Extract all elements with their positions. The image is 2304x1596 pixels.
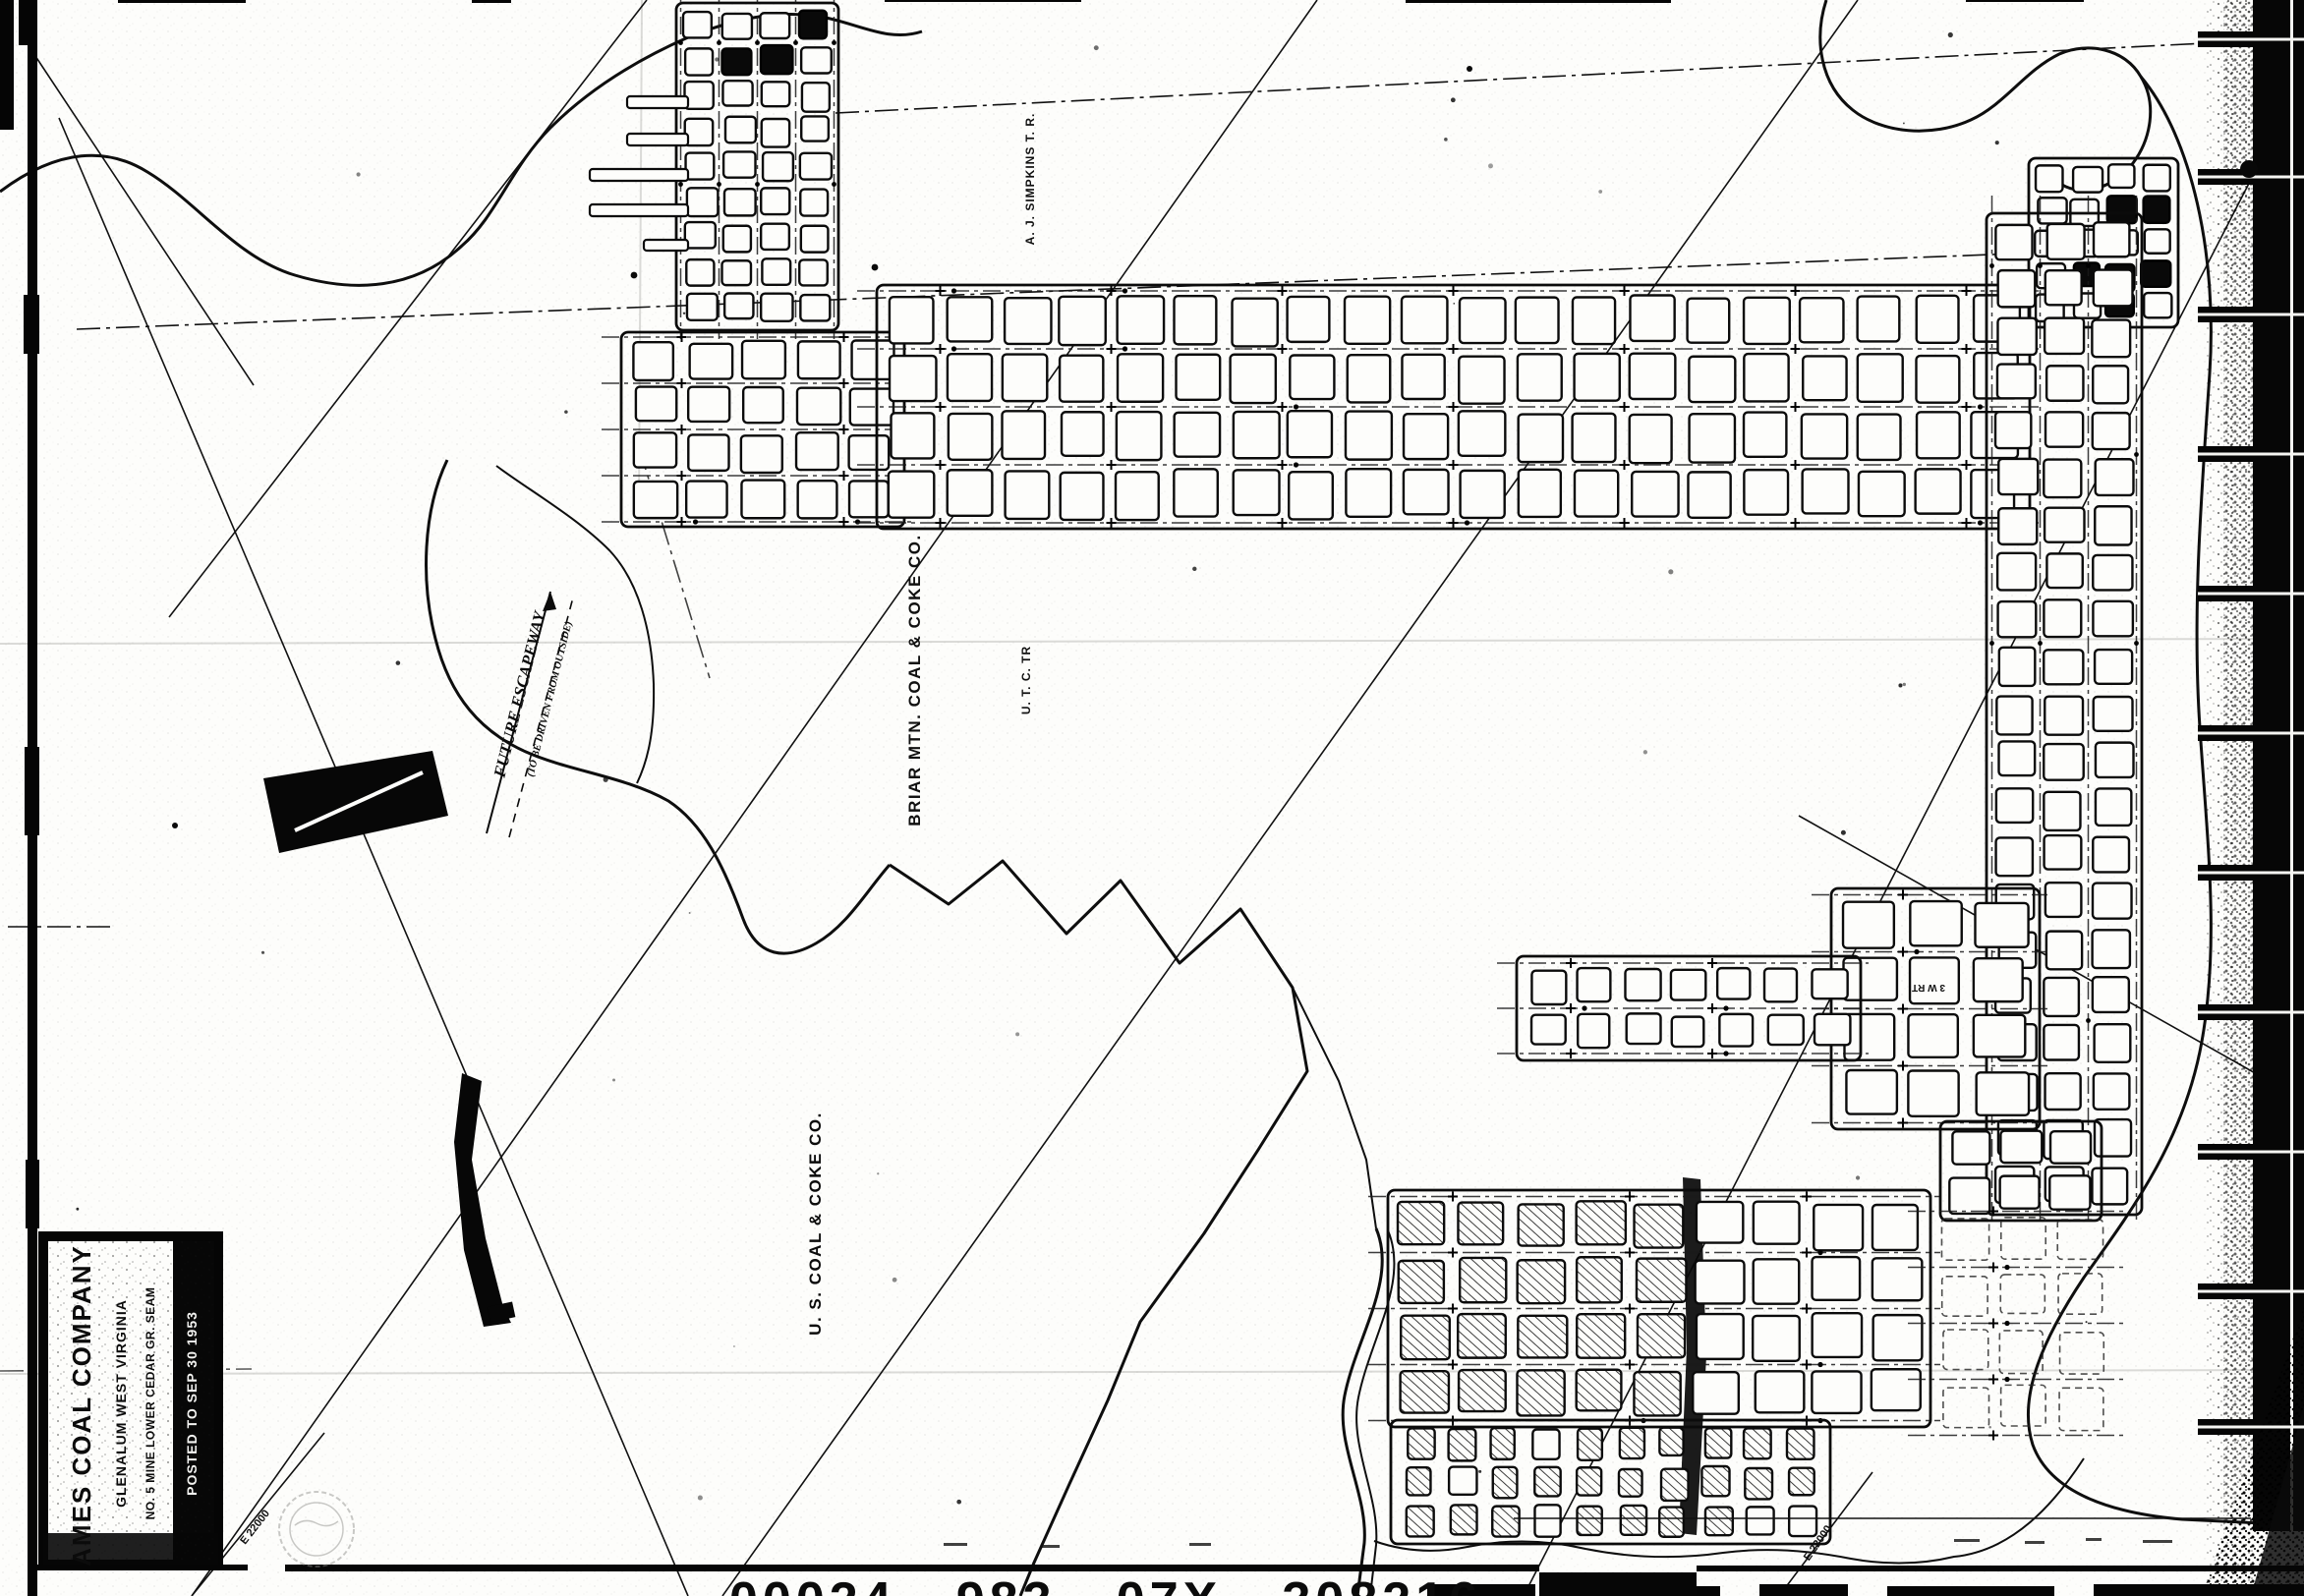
pillar xyxy=(2046,932,2082,970)
pillar xyxy=(1116,472,1159,520)
pillar xyxy=(1492,1507,1519,1537)
speck xyxy=(698,1495,703,1500)
pillar xyxy=(1672,1017,1704,1047)
pillar xyxy=(799,259,828,285)
pillar xyxy=(1345,297,1390,344)
speck xyxy=(396,660,401,665)
speck xyxy=(1453,303,1455,305)
pillar xyxy=(686,259,714,286)
pillar xyxy=(1671,970,1705,1000)
pillar xyxy=(2093,555,2132,590)
pillar xyxy=(2044,792,2080,830)
pillar xyxy=(1407,1467,1430,1495)
pillar xyxy=(1404,470,1449,514)
pillar xyxy=(2095,650,2132,684)
scanned-mine-map: AMES COAL COMPANY GLENALUM WEST VIRGINIA… xyxy=(0,0,2304,1596)
pillar xyxy=(801,47,832,73)
pillar xyxy=(1449,1467,1476,1495)
pillar xyxy=(1578,968,1611,1001)
survey-station xyxy=(1123,288,1127,293)
pillar xyxy=(1059,297,1105,345)
pillar xyxy=(1578,1429,1602,1460)
pillar xyxy=(1451,1505,1477,1534)
pillar xyxy=(1998,270,2036,307)
pillar xyxy=(1744,1428,1771,1458)
pillar xyxy=(2107,196,2137,223)
pillar xyxy=(1060,356,1103,402)
pillar xyxy=(1803,356,1846,400)
pillar xyxy=(1753,1316,1800,1361)
survey-station xyxy=(2004,1377,2009,1382)
pillar xyxy=(948,470,993,516)
pillar xyxy=(1519,470,1561,517)
pillar xyxy=(852,340,894,378)
pillar xyxy=(722,48,752,75)
survey-station xyxy=(755,40,760,45)
pillar xyxy=(2045,835,2082,870)
pillar xyxy=(1974,1015,2025,1057)
pillar xyxy=(1577,1370,1622,1411)
edge-tick-slit xyxy=(2198,1151,2304,1154)
pillar xyxy=(1458,1203,1503,1245)
pillar xyxy=(1062,412,1104,456)
pillar xyxy=(1459,1370,1506,1411)
pillar xyxy=(1519,1204,1564,1245)
pillar xyxy=(1998,508,2037,544)
pillar xyxy=(1917,412,1960,458)
pillar xyxy=(1949,1178,1989,1214)
pillar xyxy=(1789,1468,1814,1496)
pillar xyxy=(688,434,728,470)
map-canvas: AMES COAL COMPANY GLENALUM WEST VIRGINIA… xyxy=(0,0,2304,1596)
pillar xyxy=(1630,415,1672,463)
pillar xyxy=(1518,1260,1565,1303)
pillar xyxy=(741,481,784,519)
pillar xyxy=(2093,977,2129,1012)
pillar xyxy=(1346,469,1391,517)
pillar xyxy=(890,297,934,343)
pillar xyxy=(634,482,677,518)
pillar xyxy=(1118,354,1163,401)
pillar xyxy=(690,344,732,379)
pillar xyxy=(1460,1258,1506,1302)
pillar xyxy=(1578,1507,1602,1535)
speck xyxy=(1451,97,1456,102)
pillar xyxy=(1177,355,1221,400)
simpkins-tract-label: A. J. SIMPKINS T. R. xyxy=(1023,113,1037,246)
pillar xyxy=(1005,298,1051,344)
pillar xyxy=(1814,1205,1863,1250)
edge-tick-slit xyxy=(2198,1290,2304,1293)
pillar xyxy=(743,387,783,423)
stub-entry xyxy=(644,240,688,251)
pillar xyxy=(2044,744,2083,780)
pillar xyxy=(1233,299,1278,347)
pillar xyxy=(1577,1201,1626,1244)
pillar xyxy=(1630,296,1674,341)
pillar xyxy=(1688,472,1730,517)
pillar xyxy=(1744,298,1790,344)
pillar xyxy=(2045,270,2082,305)
pillar xyxy=(1404,414,1448,459)
pillar xyxy=(1531,971,1566,1004)
pillar xyxy=(1910,957,1959,1003)
pillar xyxy=(1858,297,1900,342)
pillar xyxy=(1289,472,1333,519)
speck xyxy=(261,951,264,954)
pillar xyxy=(1744,413,1786,457)
survey-station xyxy=(2038,641,2043,646)
pillar xyxy=(1908,1070,1958,1115)
pillar xyxy=(1174,296,1216,344)
pillar xyxy=(1787,1429,1814,1459)
pillar xyxy=(796,432,838,470)
pillar xyxy=(2108,164,2134,188)
pillar xyxy=(1859,472,1905,516)
survey-station xyxy=(1817,1250,1822,1255)
pillar xyxy=(2046,553,2082,588)
pillar xyxy=(762,82,789,106)
pillar xyxy=(1693,1372,1739,1413)
pillar xyxy=(2073,167,2102,193)
pillar xyxy=(1768,1015,1804,1045)
speck xyxy=(1598,190,1602,194)
survey-station xyxy=(678,182,683,187)
pillar xyxy=(1689,357,1735,402)
speck xyxy=(1015,1032,1019,1036)
pillar xyxy=(801,226,829,253)
pillar xyxy=(1637,1259,1686,1302)
pillar xyxy=(1516,298,1559,343)
pillar xyxy=(1803,469,1849,513)
pillar xyxy=(799,11,827,39)
speck xyxy=(1995,141,1999,144)
pillar xyxy=(636,387,676,422)
pillar xyxy=(1745,1468,1772,1499)
pillar xyxy=(762,119,789,147)
pillar xyxy=(1999,648,2035,686)
pillar xyxy=(1625,969,1660,1000)
pillar xyxy=(1764,969,1797,1002)
pillar xyxy=(1997,365,2036,399)
pillar xyxy=(1916,469,1961,513)
pillar xyxy=(1578,1014,1609,1048)
edge-tick-slit xyxy=(2198,872,2304,875)
pillar xyxy=(2093,883,2132,919)
pillar xyxy=(892,413,935,458)
pillar xyxy=(1802,414,1847,458)
pillar xyxy=(762,258,790,284)
pillar xyxy=(1719,1014,1753,1047)
pillar xyxy=(801,116,829,141)
film-number: 00024 - 983 - 07X - 308216 xyxy=(729,1572,1482,1596)
pillar xyxy=(1458,1314,1506,1358)
pillar xyxy=(1705,1428,1731,1457)
pillar xyxy=(634,432,676,467)
pillar xyxy=(1814,1014,1850,1046)
pillar xyxy=(2046,366,2083,401)
speck xyxy=(1690,1212,1692,1214)
pillar xyxy=(1531,1015,1566,1045)
pillar xyxy=(2045,697,2083,735)
pillar xyxy=(1872,1258,1922,1300)
pillar xyxy=(633,342,672,380)
pillar xyxy=(761,224,789,250)
survey-station xyxy=(1465,520,1469,525)
pillar xyxy=(2095,506,2131,544)
pillar xyxy=(1573,297,1615,344)
pillar xyxy=(797,388,840,425)
pillar xyxy=(1402,355,1444,399)
pillar xyxy=(1288,297,1330,342)
pillar xyxy=(685,48,713,75)
pillar xyxy=(760,13,789,38)
pillar xyxy=(2093,601,2132,636)
speck xyxy=(604,777,608,782)
pillar xyxy=(761,294,792,321)
speck xyxy=(1988,1426,1991,1429)
speck xyxy=(564,410,568,414)
pillar xyxy=(1620,1428,1644,1458)
survey-station xyxy=(2134,641,2139,646)
pillar xyxy=(685,222,716,248)
pillar xyxy=(1846,1070,1896,1114)
briar-tract-label: BRIAR MTN. COAL & COKE CO. xyxy=(905,534,924,826)
pillar xyxy=(1534,1467,1560,1497)
survey-station xyxy=(2086,263,2091,268)
pillar xyxy=(2093,837,2129,873)
pillar xyxy=(2096,459,2134,495)
pillar xyxy=(1461,471,1505,518)
pillar xyxy=(1974,958,2023,1001)
pillar xyxy=(2144,293,2171,317)
pillar xyxy=(1789,1507,1816,1537)
survey-station xyxy=(793,40,798,45)
survey-station xyxy=(2038,263,2043,268)
pillar xyxy=(1717,968,1750,998)
pillar xyxy=(2093,930,2130,968)
speck xyxy=(1094,45,1099,50)
pillar xyxy=(2144,197,2170,223)
pillar xyxy=(741,435,782,473)
stub-entry xyxy=(590,204,688,216)
speck xyxy=(1478,1470,1481,1473)
speck xyxy=(1903,123,1905,125)
pillar xyxy=(1577,1314,1625,1357)
pillar xyxy=(683,12,712,37)
pillar xyxy=(1977,1072,2029,1115)
title-company: AMES COAL COMPANY xyxy=(67,1244,96,1567)
pillar xyxy=(1858,415,1901,460)
pillar xyxy=(1288,411,1332,457)
pillar xyxy=(1460,298,1506,343)
pillar xyxy=(1813,1257,1861,1300)
pillar xyxy=(1844,958,1897,1000)
pillar xyxy=(1402,297,1447,344)
pillar xyxy=(948,354,992,401)
pillar xyxy=(1997,318,2036,355)
pillar xyxy=(2044,599,2081,637)
pillar xyxy=(1872,1369,1921,1410)
speck xyxy=(1488,163,1493,168)
pillar xyxy=(1407,1507,1434,1537)
survey-station xyxy=(2086,1018,2091,1023)
pillar xyxy=(1577,1467,1601,1495)
pillar xyxy=(1800,298,1843,342)
speck xyxy=(1903,683,1906,686)
pillar xyxy=(1575,471,1618,517)
edge-tick-slit xyxy=(2198,38,2304,41)
pillar xyxy=(1573,414,1616,462)
pillar xyxy=(1998,459,2038,494)
pillar xyxy=(723,151,755,177)
pillar xyxy=(849,481,889,517)
pillar xyxy=(798,481,837,518)
pillar xyxy=(1701,1466,1729,1496)
pillar xyxy=(1408,1428,1434,1458)
stub-entry xyxy=(590,169,688,181)
survey-station xyxy=(1978,404,1983,409)
survey-station xyxy=(1723,1005,1728,1010)
pillar xyxy=(763,152,793,181)
pillar xyxy=(1401,1316,1450,1360)
speck xyxy=(689,912,691,914)
survey-station xyxy=(832,182,836,187)
pillar xyxy=(1175,413,1220,457)
pillar xyxy=(2144,165,2170,192)
pillar xyxy=(1908,1014,1957,1057)
pillar xyxy=(1449,1429,1476,1460)
survey-station xyxy=(717,182,721,187)
pillar xyxy=(802,83,830,111)
speck xyxy=(1856,1175,1860,1179)
pillar xyxy=(1632,472,1678,517)
speck xyxy=(1643,750,1647,754)
pillar xyxy=(1234,412,1280,458)
pillar xyxy=(1754,1202,1800,1244)
pillar xyxy=(2000,1176,2040,1209)
pillar xyxy=(2045,318,2084,354)
pillar xyxy=(1697,1314,1744,1359)
survey-station xyxy=(1914,949,1919,954)
pillar xyxy=(2049,1175,2090,1209)
edge-tick-slit xyxy=(2198,313,2304,316)
title-posted-date: POSTED TO SEP 30 1953 xyxy=(184,1311,200,1496)
us-tract-label: U. S. COAL & COKE CO. xyxy=(806,1111,825,1336)
pillar xyxy=(2045,883,2082,917)
stub-entry xyxy=(627,134,688,145)
edge-tick-slit xyxy=(2198,593,2304,596)
pillar xyxy=(686,153,715,180)
pillar xyxy=(1812,969,1847,998)
pillar xyxy=(722,260,751,285)
pillar xyxy=(1997,553,2036,591)
pillar xyxy=(1858,354,1903,401)
speck xyxy=(893,1278,897,1282)
survey-station xyxy=(1723,1051,1728,1055)
pillar xyxy=(1996,837,2033,876)
pillar xyxy=(2045,412,2083,446)
edge-tick-slit xyxy=(2198,453,2304,456)
pillar xyxy=(1705,1508,1733,1536)
title-location: GLENALUM WEST VIRGINIA xyxy=(113,1299,129,1508)
pillar xyxy=(686,482,726,518)
pillar xyxy=(1754,1259,1800,1303)
pillar xyxy=(1635,1205,1684,1248)
pillar xyxy=(1006,471,1050,519)
pillar xyxy=(1003,355,1047,402)
pillar xyxy=(1995,225,2032,259)
pillar xyxy=(2038,198,2066,223)
speck xyxy=(357,172,361,176)
pillar xyxy=(1697,1202,1743,1243)
pillar xyxy=(2044,650,2083,684)
pillar xyxy=(1999,741,2036,775)
pillar xyxy=(2044,978,2079,1016)
pillar xyxy=(1532,1429,1559,1458)
survey-station xyxy=(951,288,956,293)
pillar xyxy=(1234,470,1280,515)
pillar xyxy=(2096,788,2131,826)
pillar xyxy=(761,45,792,74)
survey-station xyxy=(1294,404,1298,409)
edge-tick-slit xyxy=(2198,1011,2304,1014)
pillar xyxy=(2094,270,2133,307)
pillar xyxy=(1998,601,2037,637)
pillar xyxy=(1517,1370,1564,1415)
pillar xyxy=(1534,1505,1560,1536)
pillar xyxy=(1061,473,1104,520)
pillar xyxy=(687,188,718,216)
pillar xyxy=(2044,1025,2079,1060)
survey-station xyxy=(832,40,836,45)
pillar xyxy=(1518,1316,1567,1358)
pillar xyxy=(1996,788,2033,823)
pillar xyxy=(2050,1131,2091,1163)
pillar xyxy=(1290,356,1334,400)
pillar xyxy=(724,294,753,319)
speck xyxy=(733,1345,735,1347)
pillar xyxy=(1843,902,1894,948)
speck xyxy=(956,1500,961,1505)
pillar xyxy=(1518,354,1562,400)
speck xyxy=(1898,683,1902,687)
pillar xyxy=(1174,469,1217,516)
pillar xyxy=(798,341,840,378)
pillar xyxy=(2141,260,2170,287)
survey-station xyxy=(1989,263,1994,268)
pillar xyxy=(1459,357,1504,404)
speck xyxy=(1841,830,1846,835)
pillar xyxy=(800,153,832,180)
pillar xyxy=(890,356,936,401)
pillar xyxy=(1996,697,2032,735)
pillar xyxy=(1003,411,1046,459)
survey-station xyxy=(1978,520,1983,525)
survey-station xyxy=(693,519,698,524)
pillar xyxy=(2094,1073,2130,1109)
pillar xyxy=(2045,508,2084,542)
pillar xyxy=(1519,415,1563,463)
speck xyxy=(877,1172,879,1174)
pillar xyxy=(2045,1073,2081,1110)
pillar xyxy=(1690,414,1735,462)
pillar xyxy=(2092,320,2130,358)
pillar xyxy=(2096,743,2134,777)
pillar xyxy=(761,188,789,214)
pillar xyxy=(1917,296,1959,343)
pillar xyxy=(2093,366,2128,403)
